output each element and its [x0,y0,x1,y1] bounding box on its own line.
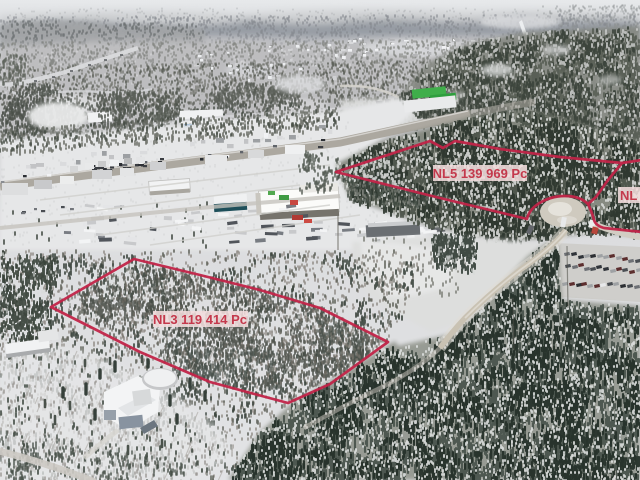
svg-text:NL3 119 414 Pc: NL3 119 414 Pc [153,312,247,327]
svg-text:NL5 139 969 Pc: NL5 139 969 Pc [433,166,528,181]
svg-text:NL: NL [620,188,637,203]
